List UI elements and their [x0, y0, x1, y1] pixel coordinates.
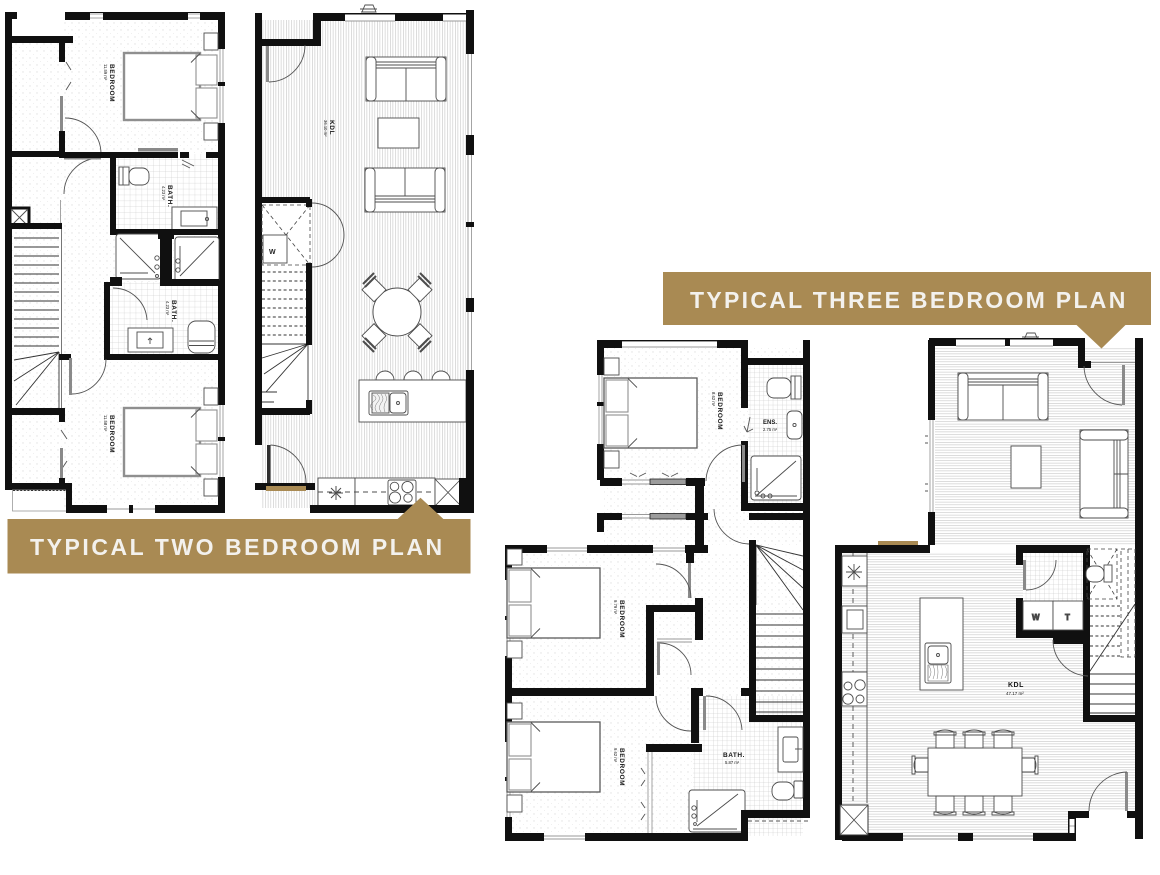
svg-text:BEDROOM: BEDROOM: [108, 415, 115, 453]
svg-text:W: W: [269, 249, 276, 256]
svg-text:W: W: [1032, 613, 1040, 622]
svg-text:KDL: KDL: [328, 120, 335, 135]
svg-text:4.23 m²: 4.23 m²: [161, 186, 166, 201]
svg-text:8.62 m²: 8.62 m²: [711, 392, 716, 407]
svg-text:ENS.: ENS.: [763, 420, 777, 426]
svg-text:2.75 m²: 2.75 m²: [763, 427, 778, 432]
svg-text:BATH.: BATH.: [170, 300, 177, 322]
svg-text:9.62 m²: 9.62 m²: [613, 748, 618, 763]
svg-text:5.87 m²: 5.87 m²: [725, 760, 740, 765]
svg-text:KDL: KDL: [1008, 682, 1024, 689]
svg-text:TYPICAL THREE BEDROOM PLAN: TYPICAL THREE BEDROOM PLAN: [690, 287, 1128, 313]
svg-text:47.17 m²: 47.17 m²: [1006, 691, 1024, 696]
svg-text:TYPICAL TWO BEDROOM PLAN: TYPICAL TWO BEDROOM PLAN: [30, 534, 445, 560]
svg-text:11.58 m²: 11.58 m²: [103, 415, 108, 432]
svg-text:9.79 m²: 9.79 m²: [613, 600, 618, 615]
svg-text:4.23 m²: 4.23 m²: [165, 301, 170, 316]
svg-text:36.10 m²: 36.10 m²: [323, 120, 328, 137]
svg-text:BATH.: BATH.: [723, 752, 745, 759]
svg-text:BEDROOM: BEDROOM: [108, 64, 115, 102]
svg-text:BEDROOM: BEDROOM: [618, 600, 625, 638]
svg-text:BATH.: BATH.: [166, 185, 173, 207]
svg-text:11.59 m²: 11.59 m²: [103, 64, 108, 81]
svg-text:BEDROOM: BEDROOM: [618, 748, 625, 786]
svg-text:BEDROOM: BEDROOM: [716, 392, 723, 430]
svg-text:T: T: [1065, 613, 1070, 622]
